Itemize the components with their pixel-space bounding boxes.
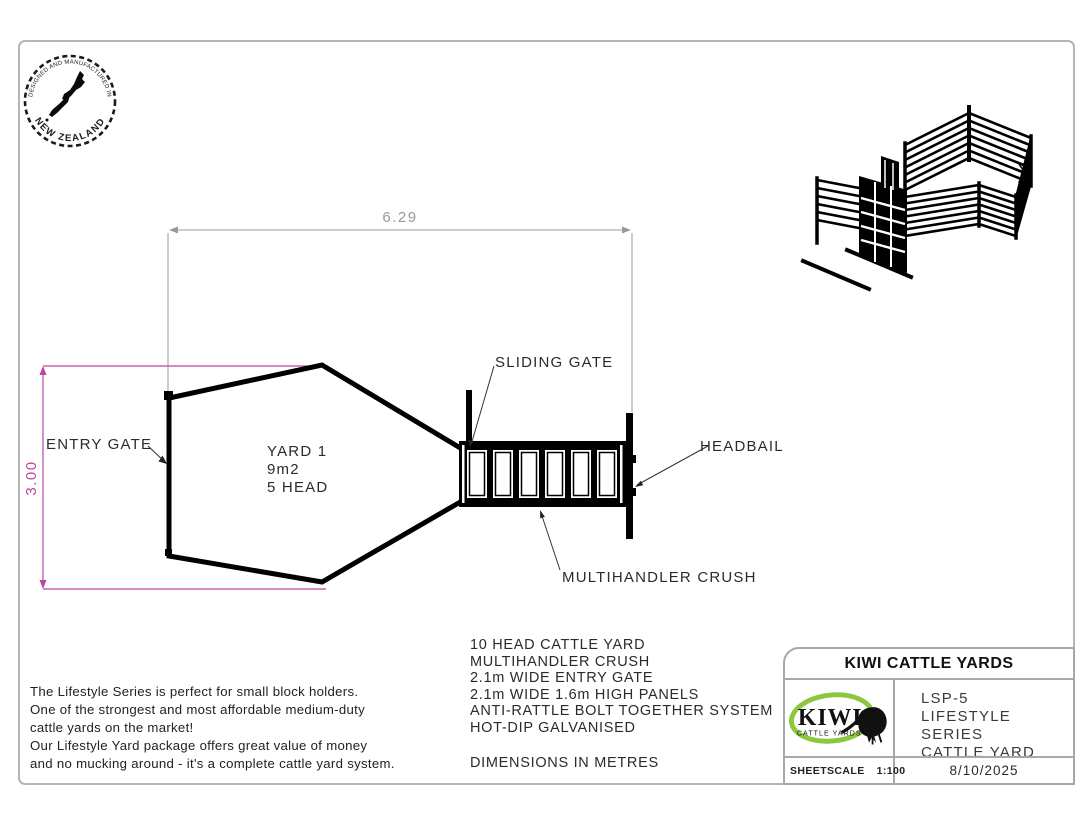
scale-cell: SHEETSCALE 1:100 — [785, 758, 895, 783]
kiwi-logo: KIWI CATTLE YARDS — [786, 685, 892, 751]
title-block-header: KIWI CATTLE YARDS — [785, 649, 1073, 680]
series-name: LIFESTYLE SERIES — [921, 708, 1073, 744]
title-block: KIWI CATTLE YARDS KIWI CATTLE YARDS LSP-… — [783, 647, 1075, 785]
isometric-view — [795, 98, 1045, 298]
logo-sub-text: CATTLE YARDS — [797, 731, 862, 738]
description-line: Our Lifestyle Yard package offers great … — [30, 737, 470, 755]
logo-brand-text: KIWI — [798, 705, 862, 731]
isometric-crush — [859, 156, 907, 273]
drawing-sheet: DESIGNED AND MANUFACTURED IN NEW ZEALAND — [0, 0, 1090, 817]
description-line: One of the strongest and most affordable… — [30, 701, 470, 719]
specs-list: 10 HEAD CATTLE YARD MULTIHANDLER CRUSH 2… — [470, 637, 790, 772]
spec-line: MULTIHANDLER CRUSH — [470, 654, 790, 671]
dimensions-note: DIMENSIONS IN METRES — [470, 755, 790, 772]
isometric-panels — [803, 107, 1031, 289]
description-text: The Lifestyle Series is perfect for smal… — [30, 683, 470, 773]
nz-made-stamp: DESIGNED AND MANUFACTURED IN NEW ZEALAND — [20, 49, 120, 153]
spec-line: HOT-DIP GALVANISED — [470, 720, 790, 737]
spec-line: ANTI-RATTLE BOLT TOGETHER SYSTEM — [470, 703, 790, 720]
drawing-date: 8/10/2025 — [895, 758, 1073, 783]
drawing-info: LSP-5 LIFESTYLE SERIES CATTLE YARD — [895, 680, 1073, 756]
spec-line: 2.1m WIDE ENTRY GATE — [470, 670, 790, 687]
sheet-scale-label: SHEETSCALE — [790, 765, 865, 777]
description-line: and no mucking around - it's a complete … — [30, 755, 470, 773]
stamp-circle — [25, 56, 115, 146]
spec-line: 2.1m WIDE 1.6m HIGH PANELS — [470, 687, 790, 704]
description-line: cattle yards on the market! — [30, 719, 470, 737]
model-number: LSP-5 — [921, 690, 1073, 708]
nz-map-icon — [46, 71, 86, 122]
description-line: The Lifestyle Series is perfect for smal… — [30, 683, 470, 701]
spec-line: 10 HEAD CATTLE YARD — [470, 637, 790, 654]
logo-cell: KIWI CATTLE YARDS — [785, 680, 895, 756]
stamp-bottom-text: NEW ZEALAND — [32, 116, 108, 144]
